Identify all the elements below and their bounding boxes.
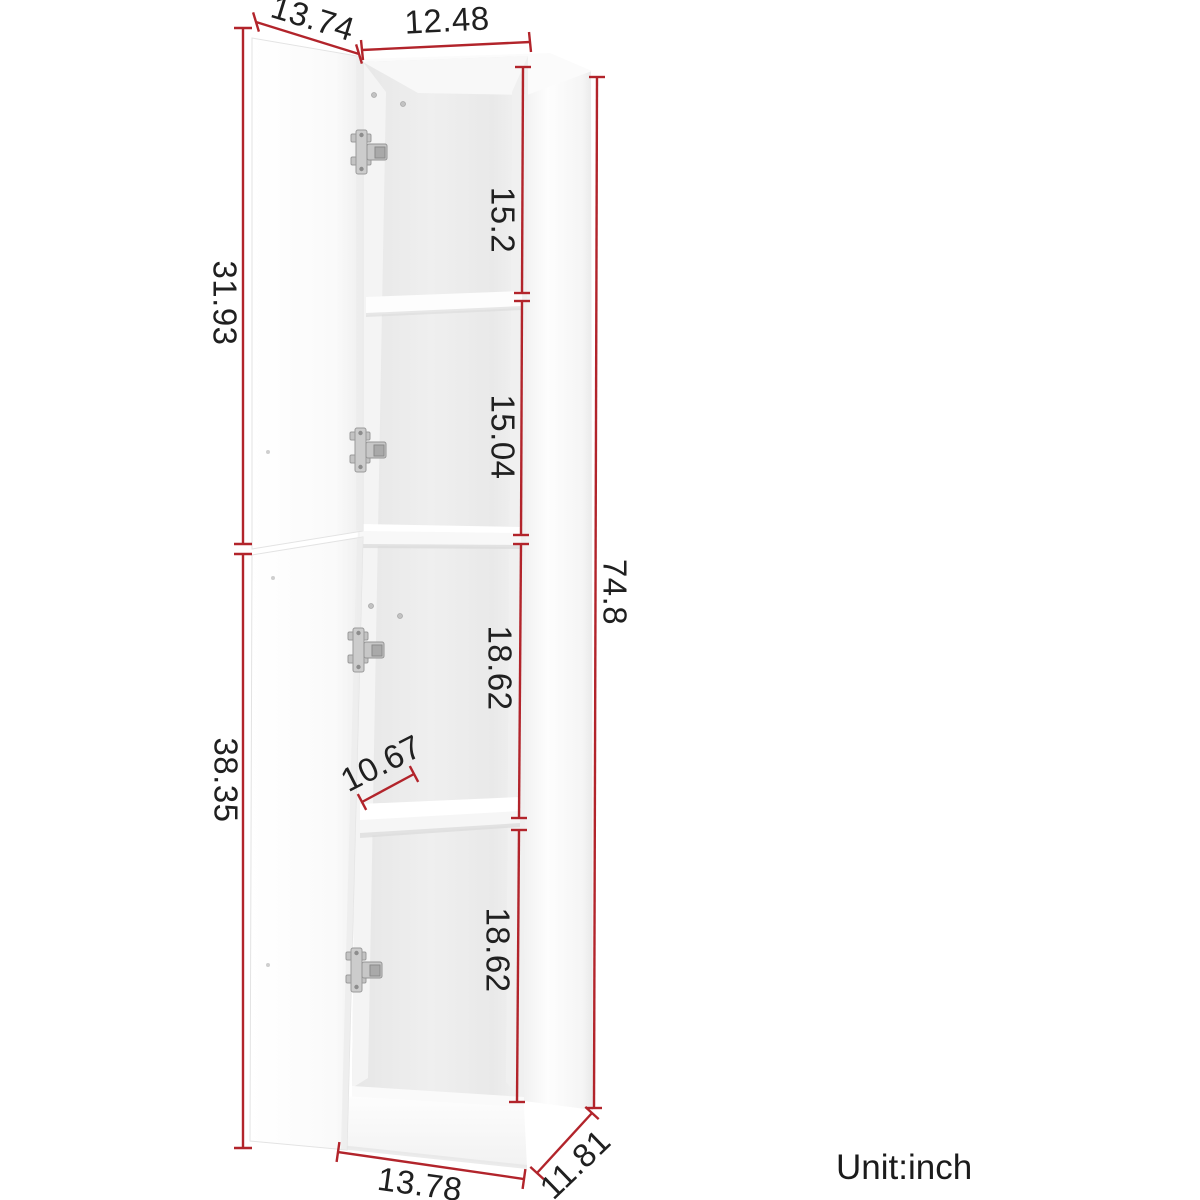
- dim-upper-door-height: 31.93: [209, 260, 242, 345]
- dim-compartment-4-height: 18.62: [482, 907, 515, 992]
- dim-compartment-3-height: 18.62: [484, 625, 517, 710]
- screw-dot: [266, 450, 270, 454]
- shelf-pin-hole: [398, 614, 403, 619]
- screw-dot: [271, 576, 275, 580]
- cabinet-side-panel: [524, 55, 593, 1110]
- dimension-diagram: 13.74 12.48 15.2 15.04 18.62 18.62 31.93…: [0, 0, 1200, 1200]
- shelf-pin-hole: [372, 93, 377, 98]
- upper-door: [252, 38, 363, 549]
- dim-top-width: 12.48: [404, 1, 491, 38]
- dim-lower-door-height: 38.35: [210, 737, 243, 822]
- dim-compartment-1-height: 15.2: [487, 187, 520, 253]
- shelf-pin-hole: [401, 102, 406, 107]
- shelf-pin-hole: [369, 604, 374, 609]
- unit-label: Unit:inch: [836, 1150, 972, 1185]
- screw-dot: [266, 963, 270, 967]
- dim-total-height: 74.8: [599, 559, 632, 625]
- dim-compartment-2-height: 15.04: [487, 394, 520, 479]
